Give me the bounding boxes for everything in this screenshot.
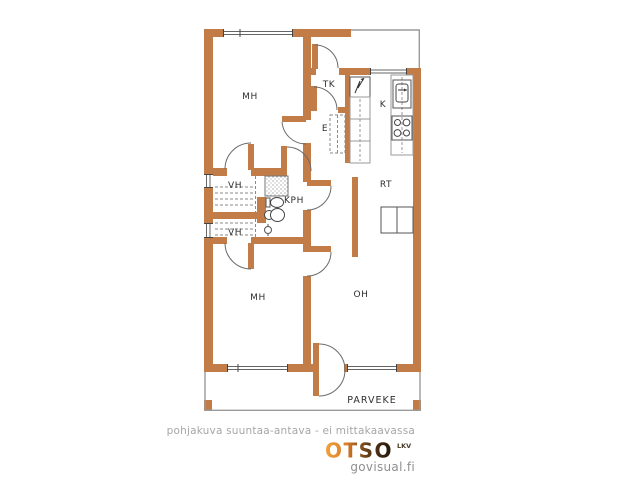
door-swing-arc [319, 344, 345, 396]
dining-table [381, 207, 413, 233]
electrical-panel-icon [350, 77, 370, 97]
disclaimer-text: pohjakuva suuntaa-antava - ei mittakaava… [35, 425, 415, 438]
door-swing-arc [225, 143, 251, 169]
door-swing-arc [225, 243, 251, 269]
wall-segment [397, 364, 421, 372]
wall-segment [251, 237, 311, 244]
door-leaf [311, 86, 317, 111]
entry-landing-outline [351, 30, 419, 68]
wall-segment [413, 68, 421, 372]
room-label-mh-bottom: MH [250, 293, 266, 303]
door-leaf [248, 144, 254, 170]
door-leaf [307, 246, 331, 252]
room-label-parveke: PARVEKE [347, 395, 396, 406]
hall-closet [330, 115, 345, 153]
room-label-kph: KPH [284, 196, 304, 206]
wall-segment [303, 276, 311, 364]
room-label-e: E [322, 124, 328, 134]
door-leaf [307, 180, 331, 186]
room-label-oh: OH [353, 290, 368, 300]
wall-segment [204, 364, 227, 372]
wall-segment [311, 68, 316, 75]
otso-logo-text: OTSO [325, 439, 393, 463]
footer: pohjakuva suuntaa-antava - ei mittakaava… [35, 425, 415, 474]
door-leaf [312, 44, 318, 69]
door-leaf [282, 116, 306, 122]
wall-segment [303, 37, 311, 120]
window [223, 29, 293, 37]
washbasin-icon [266, 198, 284, 208]
room-label-rt: RT [380, 180, 392, 190]
wall-segment [204, 237, 227, 244]
room-label-k: K [380, 100, 387, 110]
window [370, 68, 407, 75]
window [347, 364, 397, 372]
wall-segment [288, 364, 313, 372]
wall-segment [257, 197, 266, 223]
door-leaf [281, 146, 287, 171]
kitchen-cabinets [350, 97, 370, 163]
door-leaf [248, 243, 254, 269]
wall-segment [303, 210, 311, 252]
room-label-tk: TK [322, 80, 336, 90]
room-label-vh-top: VH [228, 181, 242, 191]
shower-icon [265, 176, 288, 196]
wall-segment [407, 68, 421, 75]
door-swing-arc [314, 87, 337, 110]
otso-logo-suffix: LKV [397, 442, 411, 450]
floorplan-page: MH TK K E VH KPH RT VH MH OH PARVEKE poh… [0, 0, 640, 480]
door-swing-arc [307, 252, 331, 276]
room-label-vh-bottom: VH [228, 228, 242, 238]
room-label-mh-top: MH [242, 92, 258, 102]
floorplan-drawing: MH TK K E VH KPH RT VH MH OH PARVEKE [0, 0, 640, 480]
window [204, 223, 213, 238]
wall-segment [339, 68, 370, 75]
kitchen-counter [391, 75, 413, 155]
door-swing-arc [307, 186, 331, 210]
door-swing-arc [282, 122, 306, 144]
toilet-icon [265, 209, 285, 222]
door-leaf [313, 343, 319, 396]
wall-segment [345, 75, 350, 163]
window [227, 364, 288, 372]
floor-drain-icon [265, 224, 272, 236]
wall-segment [204, 29, 213, 372]
window [204, 174, 213, 188]
wall-segment [352, 177, 358, 257]
door-swing-arc [315, 45, 338, 68]
